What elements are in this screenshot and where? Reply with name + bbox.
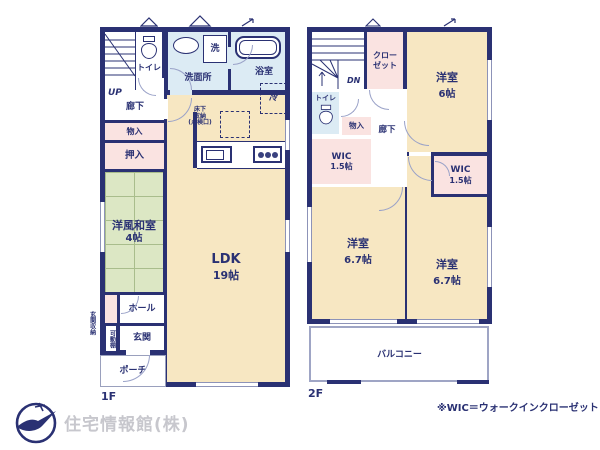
entrance-room: 玄関 <box>120 326 164 350</box>
corridor-2f-label: 廊下 <box>373 126 401 135</box>
washer-box: 洗 <box>203 35 227 63</box>
stairs-up-area <box>105 32 135 90</box>
oshiire-label: 押入 <box>125 151 144 162</box>
corridor-1f-label: 廊下 <box>118 103 152 113</box>
washer-label: 洗 <box>210 44 219 54</box>
window-tatami-left <box>100 202 105 252</box>
ldk-name-label: LDK <box>196 253 256 267</box>
stove-icon <box>253 146 282 163</box>
tatami-name-label: 洋風和室 <box>112 220 156 233</box>
balcony: バルコニー <box>307 324 492 387</box>
toilet-icon-1f <box>141 36 157 60</box>
fridge-label: 冷 <box>269 93 278 103</box>
bedroom2-size-label: 6.7帖 <box>333 255 383 266</box>
toilet-2f-label: トイレ <box>315 94 336 102</box>
storage-2f: 物入 <box>342 117 371 135</box>
movable-shelf-label: 可動棚 <box>108 330 115 348</box>
vent-arrow-bedroom1 <box>442 17 458 27</box>
washroom-label: 洗面所 <box>170 74 226 84</box>
oshiire-closet: 押入 <box>105 143 164 169</box>
wic-left: WIC 1.5帖 <box>312 139 371 184</box>
ldk-size-label: 19帖 <box>196 270 256 282</box>
toilet-room-2f: トイレ <box>312 92 339 134</box>
vent-triangle-washroom <box>188 15 212 27</box>
tatami-size-label: 4帖 <box>126 233 143 245</box>
bedroom3-name-label: 洋室 <box>425 259 469 271</box>
toilet-1f-label: トイレ <box>136 64 162 73</box>
wic-left-size: 1.5帖 <box>330 162 352 171</box>
floor2-plan: クロー ゼット トイレ 物入 WIC 1.5帖 WIC 1.5帖 バルコニー <box>307 27 492 387</box>
window-ldk-right-1 <box>285 120 290 150</box>
floorplan-page: { "palette":{"wall":"#2a3173","room_crea… <box>0 0 600 450</box>
tatami-room: 洋風和室 4帖 <box>105 172 163 292</box>
bedroom1-name-label: 洋室 <box>425 72 469 84</box>
window-bedroom2-left <box>307 207 312 262</box>
stairs-down-label: DN <box>347 77 360 86</box>
vent-triangle-closet-2f <box>365 18 381 27</box>
stairs-icon <box>105 32 135 90</box>
wic-right-size: 1.5帖 <box>449 176 471 185</box>
storage-1f-label: 物入 <box>127 127 143 136</box>
closet-2f: クロー ゼット <box>367 32 403 89</box>
closet-label-1: クロー <box>373 51 397 60</box>
entrance-label: 玄関 <box>133 333 151 343</box>
stairs-up-label: UP <box>108 89 122 99</box>
ldk-room <box>167 95 285 382</box>
balcony-wall-seg-left <box>327 380 361 384</box>
window-ldk-bottom <box>196 382 258 387</box>
floor1-label: 1F <box>101 391 116 403</box>
entrance-storage-label: 玄関収納 <box>88 297 95 349</box>
movable-shelf: 可動棚 <box>105 325 117 352</box>
vent-triangle-toilet <box>140 17 158 27</box>
kitchen-sink-icon <box>201 146 232 163</box>
window-bedroom3-right <box>487 227 492 287</box>
window-bedroom1-right <box>487 60 492 120</box>
bedroom1-size-label: 6帖 <box>429 89 465 100</box>
door-gap-washroom <box>170 90 192 95</box>
fridge-space: 冷 <box>260 83 287 114</box>
wic-note: ※WIC＝ウォークインクローゼット <box>437 399 599 414</box>
bedroom3-size-label: 6.7帖 <box>423 276 471 287</box>
bedroom2-name-label: 洋室 <box>335 238 381 250</box>
entrance-storage-strip <box>105 295 117 323</box>
window-bedroom3-balcony <box>417 319 479 324</box>
floor2-label: 2F <box>308 388 323 400</box>
window-ldk-right-2 <box>285 220 290 252</box>
washbasin-icon <box>173 37 199 54</box>
closet-label-2: ゼット <box>373 61 397 70</box>
storage-2f-label: 物入 <box>349 122 364 131</box>
company-logo <box>12 396 60 446</box>
bathroom-label: 浴室 <box>247 68 281 78</box>
door-gap-bedroom3 <box>409 152 431 156</box>
toilet-icon-2f <box>319 105 333 125</box>
underfloor-hatch-box <box>220 111 250 138</box>
floor1-plan: 物入 押入 洋風和室 4帖 可動棚 ホール 玄関 ポーチ 洗 <box>100 27 290 387</box>
vent-arrow-bath <box>240 17 256 27</box>
company-name: 住宅情報館(株) <box>64 410 190 435</box>
balcony-label: バルコニー <box>377 350 422 360</box>
storage-1f: 物入 <box>105 123 164 140</box>
wic-right-name: WIC <box>451 165 471 175</box>
window-bedroom2-balcony <box>330 319 397 324</box>
wic-left-name: WIC <box>332 152 352 162</box>
balcony-wall-seg-right <box>457 380 489 384</box>
